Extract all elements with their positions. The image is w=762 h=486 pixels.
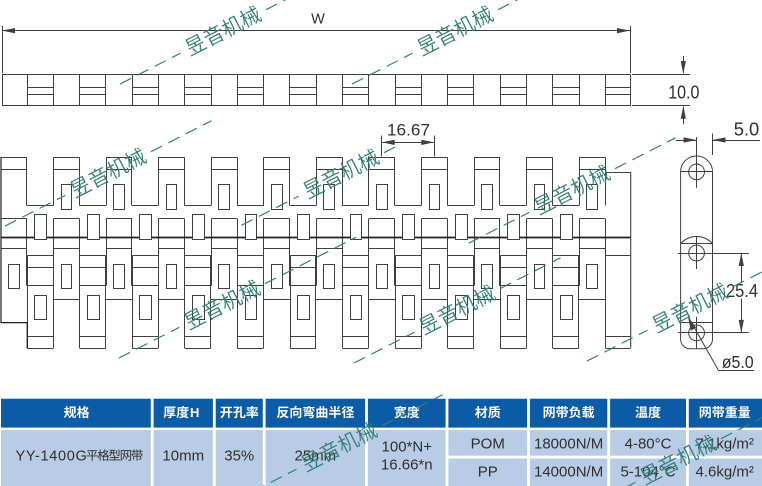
svg-text:14000N/M: 14000N/M: [534, 464, 603, 481]
svg-text:ø5.0: ø5.0: [722, 352, 754, 372]
svg-text:100*N+: 100*N+: [382, 439, 433, 456]
svg-text:POM: POM: [471, 435, 505, 452]
svg-text:5.0: 5.0: [734, 120, 760, 140]
svg-text:W: W: [311, 12, 325, 28]
svg-text:4.6kg/m²: 4.6kg/m²: [696, 464, 754, 481]
svg-text:18000N/M: 18000N/M: [534, 435, 603, 452]
svg-text:PP: PP: [478, 464, 498, 481]
svg-text:16.66*n: 16.66*n: [381, 457, 433, 474]
svg-text:10mm: 10mm: [162, 447, 204, 464]
svg-text:35%: 35%: [224, 447, 254, 464]
svg-text:H: H: [190, 405, 199, 420]
svg-text:16.67: 16.67: [387, 122, 430, 140]
svg-text:4-80°C: 4-80°C: [625, 435, 672, 452]
svg-text:10.0: 10.0: [668, 83, 699, 103]
svg-text:25.4: 25.4: [726, 281, 758, 301]
svg-text:YY-1400G: YY-1400G: [16, 448, 88, 464]
svg-text:7.1kg/m²: 7.1kg/m²: [696, 435, 754, 452]
